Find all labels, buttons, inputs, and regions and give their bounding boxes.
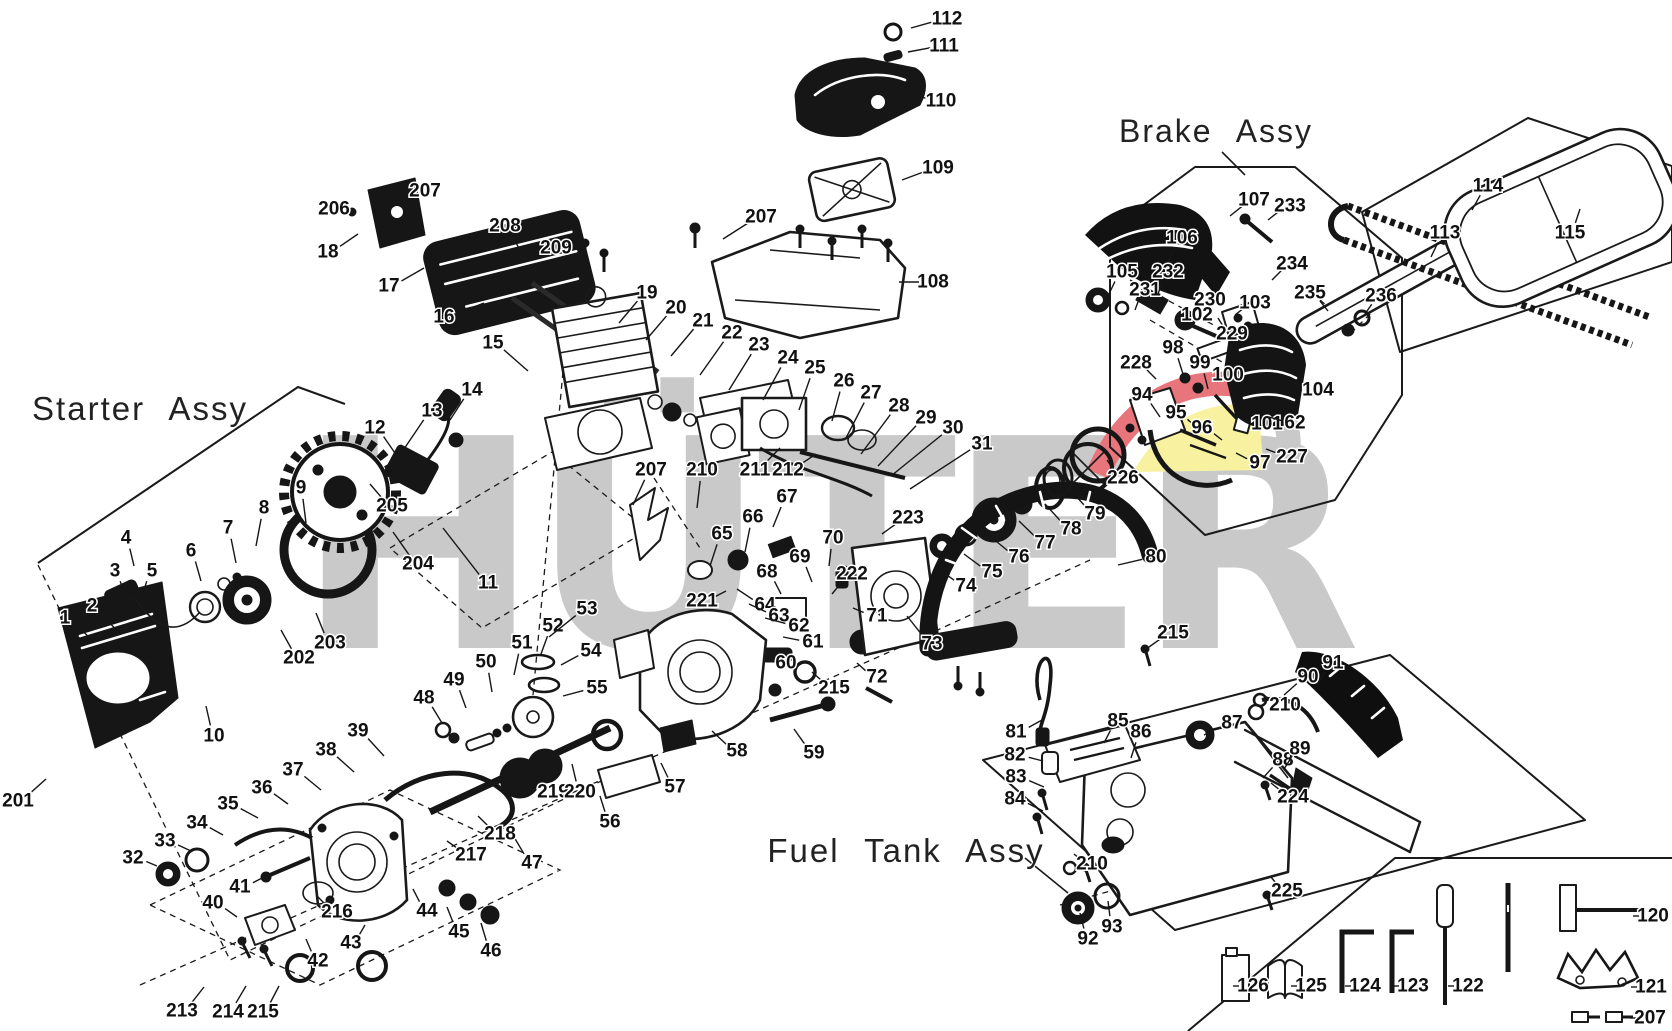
left-case-assembly bbox=[156, 773, 512, 981]
part-label-226: 226 bbox=[1107, 468, 1139, 489]
part-label-229: 229 bbox=[1216, 324, 1248, 345]
leader-line-6 bbox=[195, 561, 201, 581]
part-label-123: 123 bbox=[1397, 976, 1429, 997]
part-label-80: 80 bbox=[1145, 547, 1166, 568]
part-label-234: 234 bbox=[1276, 254, 1308, 275]
part-label-27: 27 bbox=[860, 383, 881, 404]
leader-line-40 bbox=[225, 909, 237, 917]
carburetor bbox=[742, 398, 806, 450]
part-label-57: 57 bbox=[664, 777, 685, 798]
cover-knob bbox=[885, 24, 901, 40]
part-label-108: 108 bbox=[917, 272, 949, 293]
leader-line-57 bbox=[661, 763, 668, 777]
part-label-225: 225 bbox=[1271, 881, 1303, 902]
part-label-11: 11 bbox=[478, 573, 499, 594]
part-label-222: 222 bbox=[836, 564, 868, 585]
part-label-5: 5 bbox=[147, 561, 158, 582]
washer bbox=[218, 578, 230, 590]
part-label-26: 26 bbox=[833, 371, 854, 392]
leader-line-36 bbox=[274, 794, 288, 804]
leader-line-10 bbox=[206, 706, 210, 725]
leader-line-37 bbox=[304, 776, 321, 790]
part-label-23: 23 bbox=[748, 335, 769, 356]
leader-line-202 bbox=[281, 630, 291, 649]
part-label-41: 41 bbox=[229, 877, 251, 898]
part-label-51: 51 bbox=[511, 633, 533, 654]
cover-pin bbox=[883, 50, 902, 62]
part-label-43: 43 bbox=[340, 933, 361, 954]
leader-line-34 bbox=[210, 828, 223, 835]
part-label-204: 204 bbox=[402, 554, 434, 575]
part-label-14: 14 bbox=[461, 380, 483, 401]
gasket-plate bbox=[598, 755, 660, 798]
part-label-44: 44 bbox=[416, 901, 438, 922]
part-label-15: 15 bbox=[482, 333, 504, 354]
part-label-210: 210 bbox=[686, 460, 718, 481]
part-label-66: 66 bbox=[742, 507, 763, 528]
part-label-109: 109 bbox=[922, 158, 954, 179]
part-label-72: 72 bbox=[866, 667, 887, 688]
leader-line-32 bbox=[146, 861, 157, 866]
part-label-230: 230 bbox=[1194, 290, 1226, 311]
part-label-86: 86 bbox=[1130, 722, 1151, 743]
part-label-24: 24 bbox=[777, 348, 799, 369]
leader-line-82 bbox=[1029, 757, 1043, 761]
part-label-76: 76 bbox=[1008, 547, 1029, 568]
part-label-231: 231 bbox=[1129, 280, 1161, 301]
part-label-37: 37 bbox=[282, 760, 303, 781]
part-label-61: 61 bbox=[802, 632, 824, 653]
part-label-201: 201 bbox=[2, 791, 34, 812]
part-label-82: 82 bbox=[1004, 745, 1025, 766]
crankcase bbox=[640, 610, 766, 739]
part-label-34: 34 bbox=[186, 813, 208, 834]
part-label-214: 214 bbox=[212, 1002, 244, 1023]
part-label-84: 84 bbox=[1004, 789, 1026, 810]
part-label-7: 7 bbox=[223, 518, 234, 539]
leader-line-93 bbox=[1108, 901, 1110, 916]
assembly-title-0: Starter Assy bbox=[32, 390, 248, 427]
part-label-68: 68 bbox=[756, 562, 777, 583]
part-label-4: 4 bbox=[121, 528, 132, 549]
part-label-217: 217 bbox=[455, 845, 487, 866]
part-label-33: 33 bbox=[154, 831, 175, 852]
part-label-92: 92 bbox=[1077, 929, 1098, 950]
part-label-210: 210 bbox=[1269, 695, 1301, 716]
leader-line-4 bbox=[130, 549, 134, 566]
leader-line-22 bbox=[700, 342, 724, 375]
leader-line-45 bbox=[447, 907, 453, 922]
part-label-50: 50 bbox=[475, 652, 496, 673]
part-label-12: 12 bbox=[364, 418, 385, 439]
screw-icon bbox=[1606, 1012, 1622, 1022]
part-label-107: 107 bbox=[1238, 190, 1270, 211]
part-label-215: 215 bbox=[818, 678, 850, 699]
part-label-30: 30 bbox=[942, 418, 963, 439]
part-label-203: 203 bbox=[314, 633, 346, 654]
part-label-59: 59 bbox=[803, 743, 824, 764]
part-label-78: 78 bbox=[1060, 519, 1081, 540]
part-label-235: 235 bbox=[1294, 283, 1326, 304]
part-label-45: 45 bbox=[448, 922, 470, 943]
part-label-87: 87 bbox=[1221, 713, 1242, 734]
leader-line-39 bbox=[368, 739, 384, 756]
part-label-13: 13 bbox=[421, 401, 442, 422]
part-label-65: 65 bbox=[711, 524, 733, 545]
tool-kit bbox=[1222, 883, 1640, 1022]
bar-cover bbox=[1430, 115, 1672, 321]
part-label-25: 25 bbox=[804, 358, 826, 379]
part-label-6: 6 bbox=[186, 541, 197, 562]
part-label-215: 215 bbox=[1157, 623, 1189, 644]
part-label-58: 58 bbox=[726, 741, 747, 762]
part-label-10: 10 bbox=[203, 726, 224, 747]
part-label-55: 55 bbox=[586, 678, 608, 699]
tension-strip bbox=[235, 829, 312, 845]
hose-connector bbox=[1036, 728, 1049, 746]
top-cover-assembly bbox=[712, 24, 925, 338]
part-label-207: 207 bbox=[409, 181, 441, 202]
part-label-56: 56 bbox=[599, 812, 620, 833]
part-label-70: 70 bbox=[822, 528, 843, 549]
part-label-208: 208 bbox=[489, 216, 521, 237]
part-label-22: 22 bbox=[721, 323, 742, 344]
part-label-101: 101 bbox=[1251, 414, 1283, 435]
part-label-125: 125 bbox=[1295, 976, 1327, 997]
part-label-49: 49 bbox=[443, 670, 464, 691]
part-label-62: 62 bbox=[1284, 413, 1305, 434]
part-label-202: 202 bbox=[283, 648, 315, 669]
part-label-20: 20 bbox=[665, 298, 686, 319]
part-label-115: 115 bbox=[1555, 223, 1586, 244]
part-label-39: 39 bbox=[347, 721, 368, 742]
assembly-title-1: Brake Assy bbox=[1119, 113, 1313, 149]
bar-washer bbox=[1342, 324, 1354, 336]
manual-book-icon bbox=[1268, 960, 1285, 998]
part-label-29: 29 bbox=[915, 408, 936, 429]
part-label-63: 63 bbox=[768, 606, 789, 627]
leader-line-111 bbox=[908, 48, 930, 52]
parts-diagram-page: HÜTER bbox=[0, 0, 1672, 1031]
part-label-103: 103 bbox=[1239, 293, 1271, 314]
leader-line-220 bbox=[572, 764, 576, 781]
part-label-71: 71 bbox=[866, 606, 888, 627]
cylinder bbox=[552, 293, 658, 407]
part-label-19: 19 bbox=[636, 283, 657, 304]
needle-bearing bbox=[465, 733, 495, 752]
leader-line-15 bbox=[504, 350, 528, 371]
part-label-83: 83 bbox=[1005, 767, 1026, 788]
part-label-210: 210 bbox=[1076, 854, 1108, 875]
part-label-75: 75 bbox=[981, 562, 1003, 583]
part-label-218: 218 bbox=[484, 824, 516, 845]
part-label-31: 31 bbox=[971, 434, 993, 455]
leader-line-215 bbox=[270, 986, 279, 1003]
screw-icon bbox=[1572, 1012, 1588, 1022]
part-label-207: 207 bbox=[745, 207, 777, 228]
part-label-114: 114 bbox=[1473, 176, 1504, 197]
part-label-17: 17 bbox=[378, 276, 399, 297]
part-label-74: 74 bbox=[955, 576, 977, 597]
leader-line-21 bbox=[671, 329, 694, 356]
part-label-38: 38 bbox=[315, 740, 336, 761]
part-label-111: 111 bbox=[929, 36, 959, 57]
part-label-2: 2 bbox=[87, 596, 98, 617]
part-label-89: 89 bbox=[1289, 739, 1310, 760]
part-label-224: 224 bbox=[1277, 787, 1309, 808]
part-label-223: 223 bbox=[892, 508, 924, 529]
part-label-228: 228 bbox=[1120, 353, 1152, 374]
screwdriver-icon bbox=[1437, 885, 1453, 927]
part-label-126: 126 bbox=[1237, 976, 1269, 997]
leader-line-7 bbox=[231, 539, 236, 563]
leader-line-231 bbox=[1135, 300, 1139, 310]
part-label-8: 8 bbox=[259, 498, 270, 519]
part-label-110: 110 bbox=[926, 91, 957, 112]
part-label-112: 112 bbox=[932, 9, 963, 30]
part-label-120: 120 bbox=[1637, 906, 1669, 927]
part-label-100: 100 bbox=[1212, 365, 1244, 386]
part-label-36: 36 bbox=[251, 778, 272, 799]
part-label-81: 81 bbox=[1005, 722, 1027, 743]
part-label-216: 216 bbox=[321, 902, 353, 923]
chain-catcher bbox=[688, 561, 712, 579]
part-label-211: 211 bbox=[740, 460, 771, 481]
part-label-85: 85 bbox=[1107, 711, 1129, 732]
part-label-213: 213 bbox=[166, 1001, 198, 1022]
part-label-104: 104 bbox=[1302, 380, 1334, 401]
part-label-99: 99 bbox=[1189, 353, 1210, 374]
leader-line-38 bbox=[337, 757, 354, 772]
part-label-206: 206 bbox=[318, 199, 350, 220]
av-spring bbox=[358, 952, 386, 980]
part-label-54: 54 bbox=[580, 641, 602, 662]
air-filter-cover bbox=[795, 58, 925, 137]
part-label-42: 42 bbox=[307, 951, 328, 972]
part-label-53: 53 bbox=[576, 599, 597, 620]
part-label-67: 67 bbox=[776, 487, 797, 508]
piston bbox=[513, 697, 553, 737]
chain-bar-assembly bbox=[1292, 115, 1672, 348]
part-label-79: 79 bbox=[1084, 504, 1105, 525]
part-label-95: 95 bbox=[1165, 403, 1187, 424]
part-label-73: 73 bbox=[921, 634, 942, 655]
part-label-124: 124 bbox=[1349, 976, 1381, 997]
leader-line-214 bbox=[236, 986, 246, 1003]
leader-line-112 bbox=[911, 22, 933, 28]
part-label-47: 47 bbox=[521, 853, 542, 874]
stop-switch bbox=[449, 433, 463, 447]
part-label-40: 40 bbox=[202, 893, 223, 914]
brake-title-leader bbox=[1222, 152, 1245, 175]
part-label-113: 113 bbox=[1430, 223, 1461, 244]
part-label-215: 215 bbox=[247, 1002, 279, 1023]
part-label-96: 96 bbox=[1191, 418, 1212, 439]
leader-line-46 bbox=[481, 923, 486, 941]
part-label-205: 205 bbox=[376, 496, 408, 517]
part-label-94: 94 bbox=[1131, 385, 1153, 406]
leader-line-18 bbox=[340, 234, 358, 246]
part-label-232: 232 bbox=[1152, 262, 1184, 283]
part-label-106: 106 bbox=[1166, 228, 1198, 249]
leader-line-84 bbox=[1028, 803, 1043, 811]
leader-line-98 bbox=[1178, 358, 1183, 374]
part-label-209: 209 bbox=[540, 238, 572, 259]
part-label-227: 227 bbox=[1276, 447, 1308, 468]
part-label-93: 93 bbox=[1101, 917, 1122, 938]
part-label-60: 60 bbox=[775, 653, 796, 674]
part-label-212: 212 bbox=[772, 460, 804, 481]
part-label-98: 98 bbox=[1162, 338, 1183, 359]
part-label-1: 1 bbox=[60, 608, 71, 629]
leader-line-33 bbox=[178, 845, 191, 851]
part-label-16: 16 bbox=[433, 307, 454, 328]
part-label-28: 28 bbox=[888, 396, 909, 417]
leader-line-42 bbox=[306, 939, 311, 951]
part-label-32: 32 bbox=[122, 848, 143, 869]
part-label-97: 97 bbox=[1249, 453, 1270, 474]
part-label-46: 46 bbox=[480, 941, 501, 962]
part-label-35: 35 bbox=[217, 794, 239, 815]
leader-line-35 bbox=[241, 809, 258, 818]
part-label-90: 90 bbox=[1297, 667, 1318, 688]
part-label-3: 3 bbox=[110, 561, 121, 582]
starter-cover-hole bbox=[85, 651, 151, 705]
part-label-77: 77 bbox=[1034, 533, 1055, 554]
part-label-207: 207 bbox=[1634, 1008, 1666, 1029]
part-label-220: 220 bbox=[564, 782, 596, 803]
chainsaw-exploded-diagram: HÜTER bbox=[0, 0, 1672, 1031]
leader-line-56 bbox=[600, 796, 605, 812]
leader-line-83 bbox=[1029, 781, 1044, 787]
part-label-207: 207 bbox=[635, 460, 667, 481]
part-label-21: 21 bbox=[692, 311, 714, 332]
tool-kit-box bbox=[1188, 858, 1672, 1031]
leader-line-8 bbox=[256, 519, 261, 546]
leader-line-17 bbox=[401, 268, 424, 281]
leader-line-20 bbox=[646, 316, 666, 340]
plug-wrench-icon bbox=[1560, 885, 1576, 931]
tensioner-plate bbox=[245, 905, 295, 945]
part-label-233: 233 bbox=[1274, 196, 1306, 217]
part-label-18: 18 bbox=[317, 242, 338, 263]
fuel-filter bbox=[1042, 752, 1058, 774]
part-label-91: 91 bbox=[1322, 653, 1344, 674]
part-label-69: 69 bbox=[789, 547, 810, 568]
part-label-121: 121 bbox=[1635, 977, 1667, 998]
part-label-122: 122 bbox=[1452, 976, 1484, 997]
part-label-221: 221 bbox=[686, 591, 718, 612]
assembly-title-2: Fuel Tank Assy bbox=[767, 832, 1044, 869]
part-label-9: 9 bbox=[296, 478, 307, 499]
part-label-236: 236 bbox=[1365, 286, 1397, 307]
part-label-48: 48 bbox=[413, 688, 434, 709]
